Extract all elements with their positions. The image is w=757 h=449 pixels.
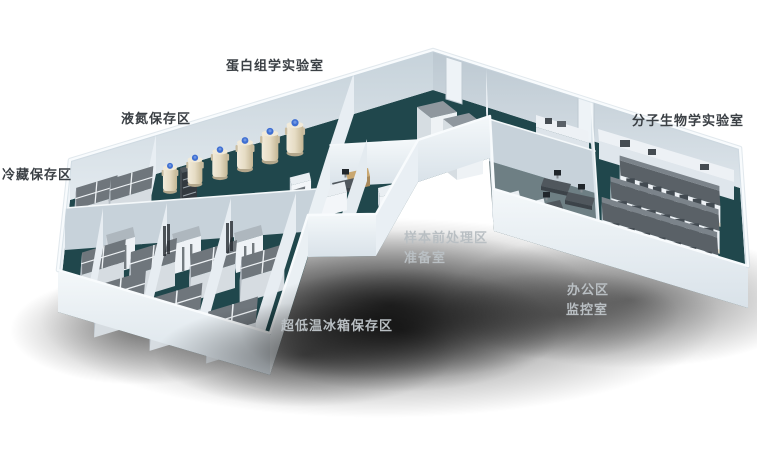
label-office-area: 办公区 — [567, 284, 609, 297]
back-door — [446, 57, 462, 104]
label-cold-storage: 冷藏保存区 — [2, 169, 72, 182]
annex-front-wall — [308, 214, 376, 257]
label-ult-freezer-storage: 超低温冰箱保存区 — [281, 320, 393, 333]
label-preparation-room: 准备室 — [404, 252, 446, 265]
label-proteomics-lab: 蛋白组学实验室 — [226, 60, 324, 73]
floorplan-3d-render — [0, 0, 757, 449]
label-molecular-biology-lab: 分子生物学实验室 — [632, 115, 744, 128]
label-monitoring-room: 监控室 — [566, 304, 608, 317]
lab-floorplan-figure: 蛋白组学实验室 液氮保存区 冷藏保存区 分子生物学实验室 样本前处理区 准备室 … — [0, 0, 757, 449]
wall-cabinets — [106, 225, 263, 275]
label-liquid-nitrogen-storage: 液氮保存区 — [121, 113, 191, 126]
label-sample-pretreatment: 样本前处理区 — [404, 232, 488, 245]
